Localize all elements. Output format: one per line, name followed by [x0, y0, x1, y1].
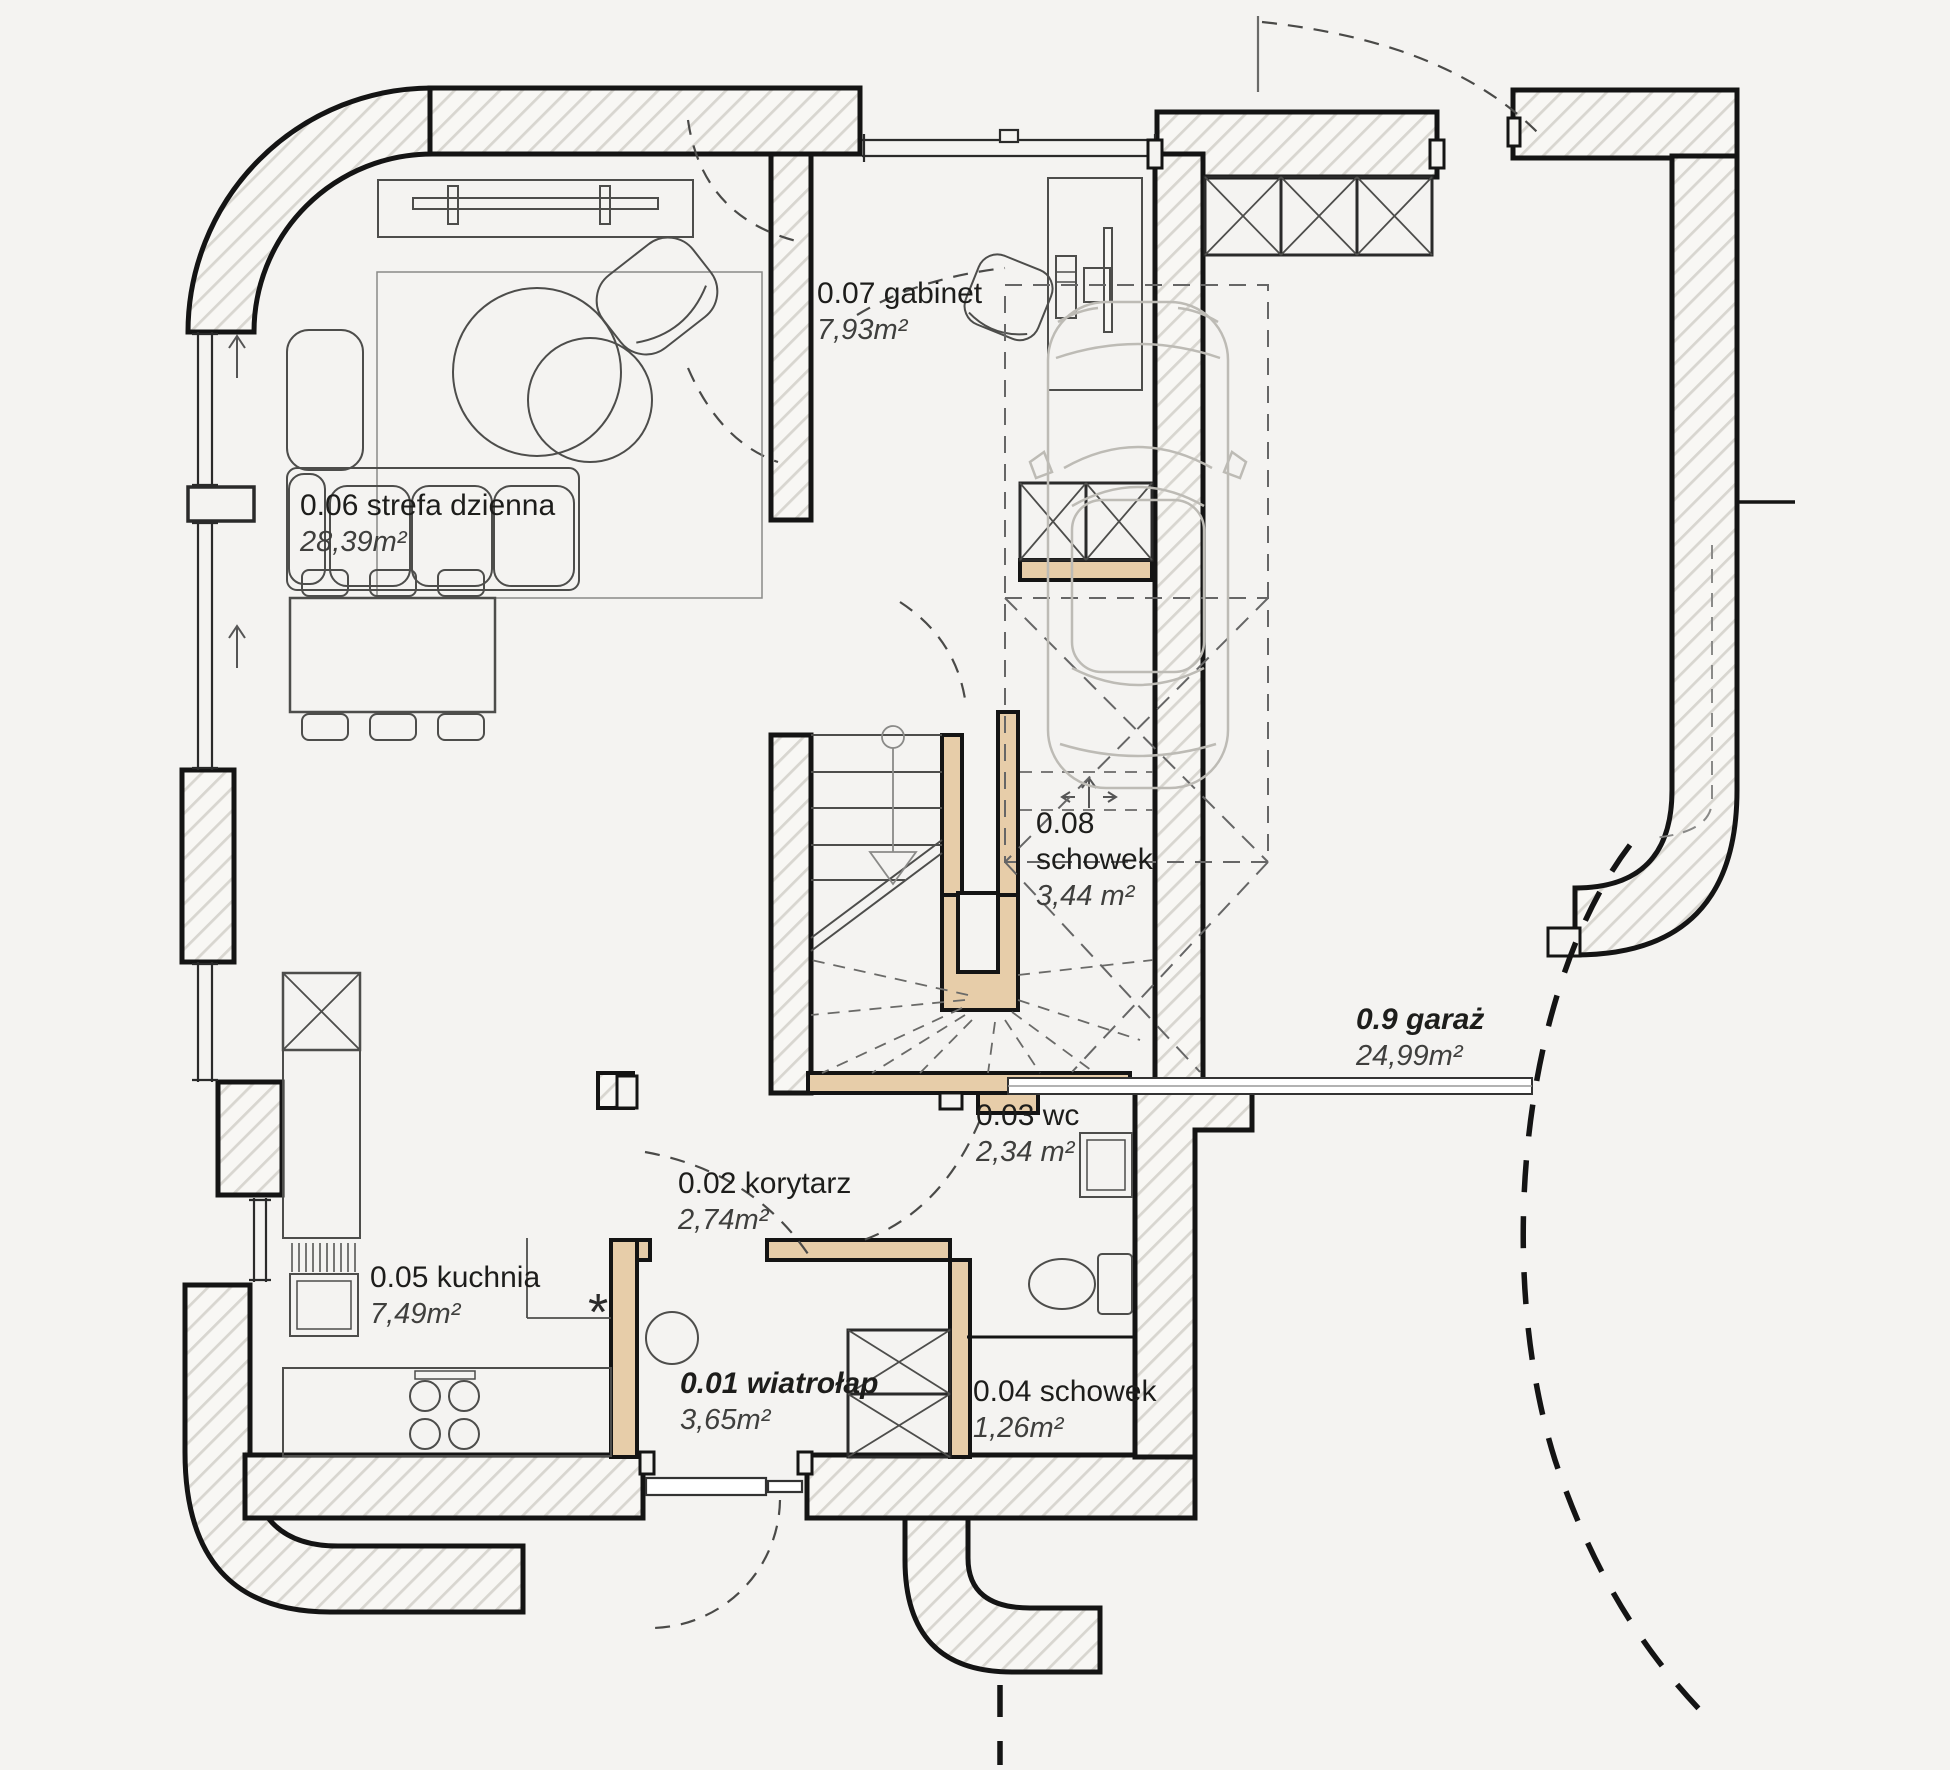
kitchen-counter-bottom: [283, 1368, 611, 1456]
tan-stair-east-a: [942, 735, 962, 897]
room-label-0-9: 0.9 garaż 24,99m²: [1356, 1002, 1484, 1074]
closet-garage-top: [1205, 177, 1432, 255]
window-left-lower: [192, 962, 218, 1082]
wall-top-left-corner: [188, 88, 432, 332]
schowek-arrow-symbol: [1062, 778, 1116, 808]
wiatrolap-stool: [646, 1312, 698, 1364]
tv-console: [378, 180, 693, 237]
window-mullion-block: [188, 487, 254, 521]
room-area: 1,26m²: [973, 1410, 1156, 1446]
room-name: 0.01 wiatrołap: [680, 1366, 878, 1402]
wall-left-block: [182, 770, 234, 962]
wall-kitchen-bottom: [245, 1455, 643, 1518]
cooktop: [410, 1371, 479, 1449]
room-area: 3,65m²: [680, 1402, 878, 1438]
tan-korytarz-band: [767, 1240, 950, 1260]
door-arc-hall-living: [688, 368, 778, 462]
wall-bottom-left-curve: [185, 1285, 523, 1612]
washbasin: [1080, 1133, 1132, 1197]
window-left-upper: [192, 332, 218, 487]
room-name: 0.07 gabinet: [817, 276, 982, 312]
room-area: 2,74m²: [678, 1202, 851, 1238]
stair-upper-flight-dashed: [1020, 772, 1153, 810]
stair-direction-arrow: [870, 726, 916, 884]
stair-cut-line: [811, 840, 942, 951]
closet-gabinet: [1020, 483, 1152, 560]
window-kitchen: [249, 1198, 271, 1282]
room-label-0-07: 0.07 gabinet 7,93m²: [817, 276, 982, 348]
office-furniture: [959, 178, 1142, 390]
living-room-furniture: [287, 180, 762, 740]
tan-gabinet-bottom: [1020, 560, 1152, 580]
room-area: 24,99m²: [1356, 1038, 1484, 1074]
desk-shelf: [1056, 256, 1076, 318]
room-name: 0.03 wc: [976, 1098, 1079, 1134]
room-name: 0.04 schowek: [973, 1374, 1156, 1410]
room-label-0-05: 0.05 kuchnia 7,49m²: [370, 1260, 540, 1332]
door-arc-wc: [858, 1120, 980, 1242]
door-arc-entrance: [652, 1500, 780, 1628]
room-label-0-02: 0.02 korytarz 2,74m²: [678, 1166, 851, 1238]
room-label-0-06: 0.06 strefa dzienna 28,39m²: [300, 488, 555, 560]
floor-plan: *: [0, 0, 1950, 1770]
toilet: [1029, 1254, 1132, 1314]
wall-stairs-left: [771, 735, 811, 1093]
wall-kitchen-left: [218, 1082, 282, 1195]
stair-shaft-slot: [958, 893, 998, 972]
tan-wiatrolap-left: [611, 1240, 637, 1457]
room-label-0-04: 0.04 schowek 1,26m²: [973, 1374, 1156, 1446]
wall-bottom-center-curve: [905, 1518, 1100, 1672]
room-area: 3,44 m²: [1036, 878, 1176, 914]
room-label-0-01: 0.01 wiatrołap 3,65m²: [680, 1366, 878, 1438]
room-name: 0.02 korytarz: [678, 1166, 851, 1202]
garage-door: [1008, 1078, 1532, 1094]
driveway-edge: [1523, 845, 1700, 1710]
dining-table: [290, 598, 495, 712]
room-name: 0.9 garaż: [1356, 1002, 1484, 1038]
room-name: 0.08 schowek: [1036, 806, 1176, 878]
wall-top-right: [1513, 90, 1737, 158]
kitchen-sink: [290, 1274, 358, 1336]
room-name: 0.05 kuchnia: [370, 1260, 540, 1296]
kitchen-fixtures: [283, 973, 611, 1456]
tan-wiatrolap-right: [950, 1260, 970, 1457]
room-area: 7,93m²: [817, 312, 982, 348]
entrance-door: [646, 1478, 802, 1495]
wall-living-gabinet-upper: [771, 154, 811, 520]
dining-set: [290, 570, 495, 740]
room-label-0-03: 0.03 wc 2,34 m²: [976, 1098, 1079, 1170]
window-gabinet-top: [862, 130, 1157, 162]
room-area: 28,39m²: [300, 524, 555, 560]
room-label-0-08: 0.08 schowek 3,44 m²: [1036, 806, 1176, 914]
wall-garage-left: [1155, 154, 1203, 1080]
wall-top-living: [430, 88, 860, 154]
kitchen-counter-left: [283, 1050, 360, 1238]
room-area: 2,34 m²: [976, 1134, 1079, 1170]
floor-plan-canvas: *: [0, 0, 1950, 1770]
room-area: 7,49m²: [370, 1296, 540, 1332]
dish-drainer: [292, 1243, 355, 1272]
window-left-middle: [192, 521, 218, 770]
kitchen-marker: *: [588, 1284, 608, 1342]
door-arc-hall-stairs: [900, 602, 966, 706]
wall-bottom-right-of-door: [807, 1455, 1195, 1518]
coffee-table-small: [528, 338, 652, 462]
fridge: [283, 973, 360, 1050]
armchair: [584, 225, 730, 368]
tan-stair-east-b: [998, 712, 1018, 897]
room-name: 0.06 strefa dzienna: [300, 488, 555, 524]
